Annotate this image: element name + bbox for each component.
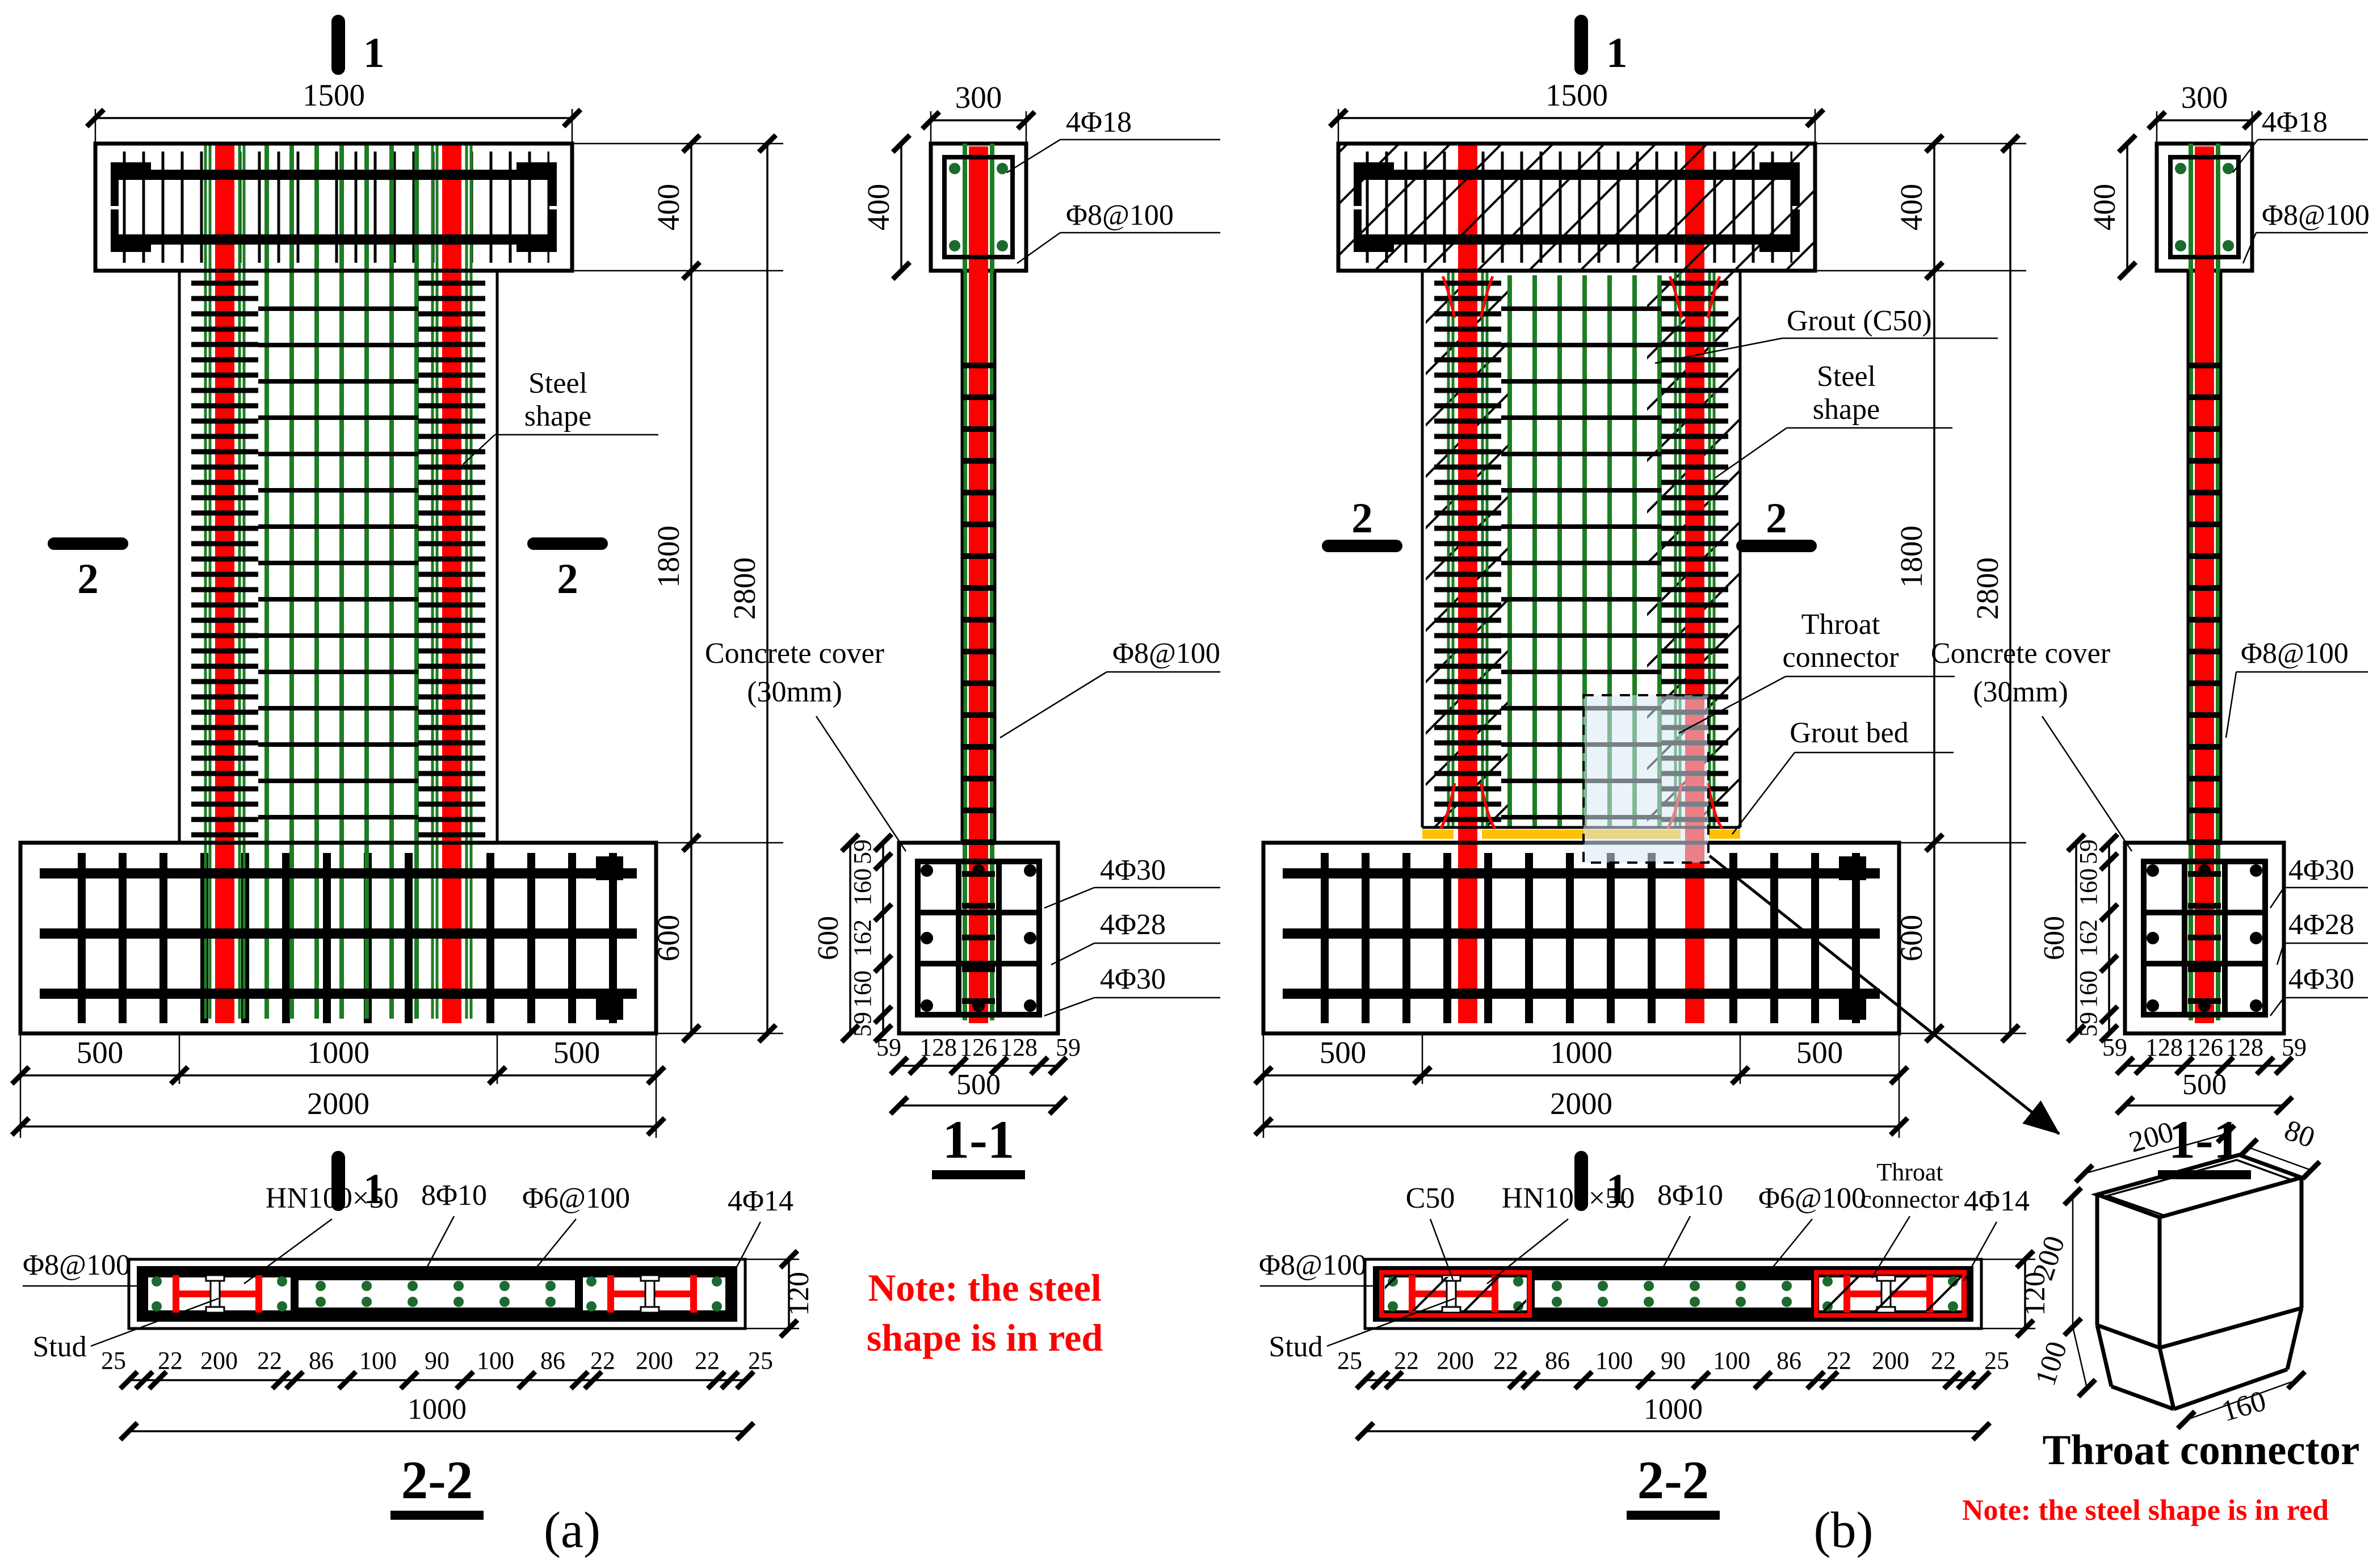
panel-caption: (a) [544, 1502, 600, 1558]
dim-label: 500 [1320, 1035, 1367, 1070]
cover-label: Concrete cover [705, 637, 884, 670]
dim-label: 600 [1894, 915, 1929, 962]
dim-label: 59 [2102, 1033, 2127, 1061]
dim-label: 160 [2074, 868, 2102, 906]
dim-label: 22 [590, 1347, 615, 1374]
steel-shape-label: Steel [1817, 360, 1876, 393]
section-marker: 2 [557, 556, 578, 603]
cover-label: (30mm) [747, 676, 842, 708]
dim-label: 90 [425, 1347, 450, 1374]
steel-shape-label: shape [1813, 393, 1880, 426]
rebar-label: 4Φ30 [1100, 854, 1166, 886]
rebar-label: 4Φ18 [1066, 106, 1132, 138]
section-title: 2-2 [401, 1450, 473, 1510]
dim-label: 100 [2029, 1338, 2073, 1390]
dim-label: 25 [748, 1347, 773, 1374]
dim-label: 200 [200, 1347, 238, 1374]
throat-connector-label: connector [1782, 641, 1899, 674]
panel-caption: (b) [1814, 1502, 1874, 1558]
hoop-label: Φ8@100 [23, 1249, 131, 1281]
dim-label: 128 [2145, 1033, 2183, 1061]
boundary-ties-left [191, 276, 258, 840]
dim-label: 200 [1437, 1347, 1474, 1374]
section-marker: 2 [1351, 495, 1373, 542]
section-title: 2-2 [1637, 1450, 1710, 1510]
dim-label: 90 [1661, 1347, 1686, 1374]
dim-label: 25 [101, 1347, 126, 1374]
section-title: 1-1 [943, 1109, 1015, 1170]
hoop-label: Φ8@100 [1259, 1249, 1367, 1281]
steel-shape-label: Steel [528, 367, 587, 400]
dim-label: 1000 [1644, 1393, 1703, 1426]
dim-label: 2800 [727, 557, 762, 620]
web-ties [258, 278, 418, 840]
dim-label: 59 [876, 1033, 901, 1061]
dim-label: 400 [1894, 184, 1929, 231]
dim-label: 86 [1545, 1347, 1570, 1374]
dim-label: 120 [783, 1272, 815, 1316]
dim-label: 2800 [1970, 557, 2005, 620]
dim-label: 25 [1337, 1347, 1362, 1374]
dim-label: 86 [1776, 1347, 1801, 1374]
dim-label: 160 [849, 868, 876, 906]
stirrup-label: Φ8@100 [2241, 637, 2349, 670]
dim-label: 400 [2087, 184, 2122, 231]
grout-bed-label: Grout bed [1790, 717, 1908, 749]
joint-highlight-box [1584, 695, 1708, 863]
dim-label: 500 [1796, 1035, 1843, 1070]
stirrup-label: Φ8@100 [1112, 637, 1220, 670]
rebar-label: 4Φ28 [1100, 909, 1166, 941]
dim-label: 128 [2226, 1033, 2263, 1061]
dim-label: 160 [849, 970, 876, 1008]
section-marker: 2 [1766, 495, 1787, 542]
rebar-label: 8Φ10 [421, 1179, 487, 1212]
dim-label: 22 [1394, 1347, 1419, 1374]
rebar-label: 4Φ30 [1100, 963, 1166, 995]
dim-label: 22 [695, 1347, 720, 1374]
dim-label: 59 [1056, 1033, 1081, 1061]
throat-connector-detail: 200 80 200 100 160 Throat connector [2027, 1114, 2359, 1474]
steel-label: HN100×50 [1502, 1182, 1635, 1214]
grout-label: Grout (C50) [1787, 305, 1932, 337]
dim-label: 86 [540, 1347, 565, 1374]
dim-label: 86 [309, 1347, 334, 1374]
panel-b-section-1-1: 300 400 4Φ18 Φ8@100 Concrete cover (30mm… [1931, 80, 2370, 1179]
panel-a-section-1-1: 300 400 4Φ18 Φ8@100 Concrete cover (30mm… [705, 80, 1220, 1179]
dim-label: 500 [956, 1069, 1001, 1101]
stud-label: Stud [1269, 1331, 1322, 1363]
tie-label: Φ6@100 [1758, 1182, 1866, 1214]
dim-label: 162 [849, 919, 876, 957]
dim-label: 600 [2038, 916, 2070, 960]
dim-label: 1000 [1550, 1035, 1612, 1070]
section-marker: 1 [1606, 30, 1628, 77]
dim-label: 400 [651, 184, 686, 231]
dim-label: 600 [651, 915, 686, 962]
dim-label: 162 [2074, 919, 2102, 957]
throat-connector-label: Throat [1801, 608, 1880, 641]
cover-label: (30mm) [1973, 676, 2068, 708]
figure-page: 1 1500 400 1800 600 2800 500 1000 500 20… [0, 0, 2373, 1568]
dim-label: 2000 [307, 1086, 369, 1121]
panel-a-section-2-2: HN100×50 8Φ10 Φ6@100 4Φ14 Φ8@100 Stud 12… [23, 1179, 815, 1520]
dim-label: 22 [1493, 1347, 1518, 1374]
beam-hatch [1338, 144, 1815, 271]
section-marker: 1 [363, 30, 385, 77]
dim-label: 500 [553, 1035, 600, 1070]
throat-connector-label: connector [1860, 1186, 1959, 1213]
dim-label: 200 [2027, 1232, 2071, 1284]
dim-label: 100 [1595, 1347, 1633, 1374]
stirrup-label: Φ8@100 [1066, 199, 1174, 232]
dim-label: 128 [1000, 1033, 1038, 1061]
dim-label: 80 [2280, 1114, 2319, 1154]
dim-label: 200 [1872, 1347, 1909, 1374]
note-text: shape is in red [867, 1316, 1103, 1359]
dim-label: 400 [861, 184, 896, 231]
steel-label: HN100×50 [266, 1182, 398, 1214]
rebar-label: 4Φ30 [2288, 963, 2354, 995]
dim-label: 1800 [1894, 526, 1929, 588]
dim-label: 126 [960, 1033, 997, 1061]
dim-label: 100 [359, 1347, 397, 1374]
boundary-ties-right [418, 276, 485, 840]
section-marker: 2 [77, 556, 99, 603]
dim-label: 300 [2181, 80, 2228, 115]
rebar-label: 4Φ30 [2288, 854, 2354, 886]
grout-bed-strip [1422, 830, 1454, 839]
dim-label: 300 [955, 80, 1002, 115]
dim-label: 25 [1984, 1347, 2009, 1374]
dim-label: 600 [812, 916, 845, 960]
rebar-label: 4Φ28 [2288, 909, 2354, 941]
throat-connector-label: Throat [1876, 1158, 1943, 1186]
dim-label: 1800 [651, 526, 686, 588]
note-text: Note: the steel [868, 1266, 1102, 1309]
dim-label: 1000 [307, 1035, 369, 1070]
dim-label: 1500 [1545, 78, 1608, 112]
panel-b-section-2-2: C50 HN100×50 8Φ10 Φ6@100 Throat connecto… [1259, 1158, 2051, 1520]
rebar-label: 4Φ14 [728, 1185, 793, 1217]
dim-label: 126 [2186, 1033, 2223, 1061]
rebar-label: 8Φ10 [1657, 1179, 1723, 1212]
dim-label: 59 [2282, 1033, 2307, 1061]
dim-label: 1000 [408, 1393, 467, 1426]
dim-label: 1500 [303, 78, 365, 112]
dim-label: 500 [2182, 1069, 2227, 1101]
boundary-ties-left [1434, 276, 1501, 825]
grout-label: C50 [1406, 1182, 1455, 1214]
dim-label: 100 [477, 1347, 514, 1374]
dim-label: 128 [919, 1033, 957, 1061]
dim-label: 160 [2074, 970, 2102, 1008]
steel-shape-label: shape [524, 400, 591, 432]
dim-label: 200 [636, 1347, 673, 1374]
rebar-label: 4Φ18 [2262, 106, 2328, 138]
stud-label: Stud [32, 1331, 86, 1363]
tie-label: Φ6@100 [522, 1182, 630, 1214]
structural-drawing: 1 1500 400 1800 600 2800 500 1000 500 20… [0, 0, 2373, 1568]
note-text: Note: the steel shape is in red [1962, 1494, 2329, 1527]
dim-label: 100 [1713, 1347, 1750, 1374]
detail-title: Throat connector [2043, 1427, 2360, 1474]
dim-label: 2000 [1550, 1086, 1612, 1121]
dim-label: 22 [158, 1347, 183, 1374]
dim-label: 22 [1826, 1347, 1851, 1374]
stirrup-label: Φ8@100 [2262, 199, 2370, 232]
cover-label: Concrete cover [1931, 637, 2110, 670]
dim-label: 22 [1931, 1347, 1956, 1374]
dim-label: 22 [257, 1347, 282, 1374]
rebar-label: 4Φ14 [1964, 1185, 2030, 1217]
dim-label: 500 [77, 1035, 124, 1070]
